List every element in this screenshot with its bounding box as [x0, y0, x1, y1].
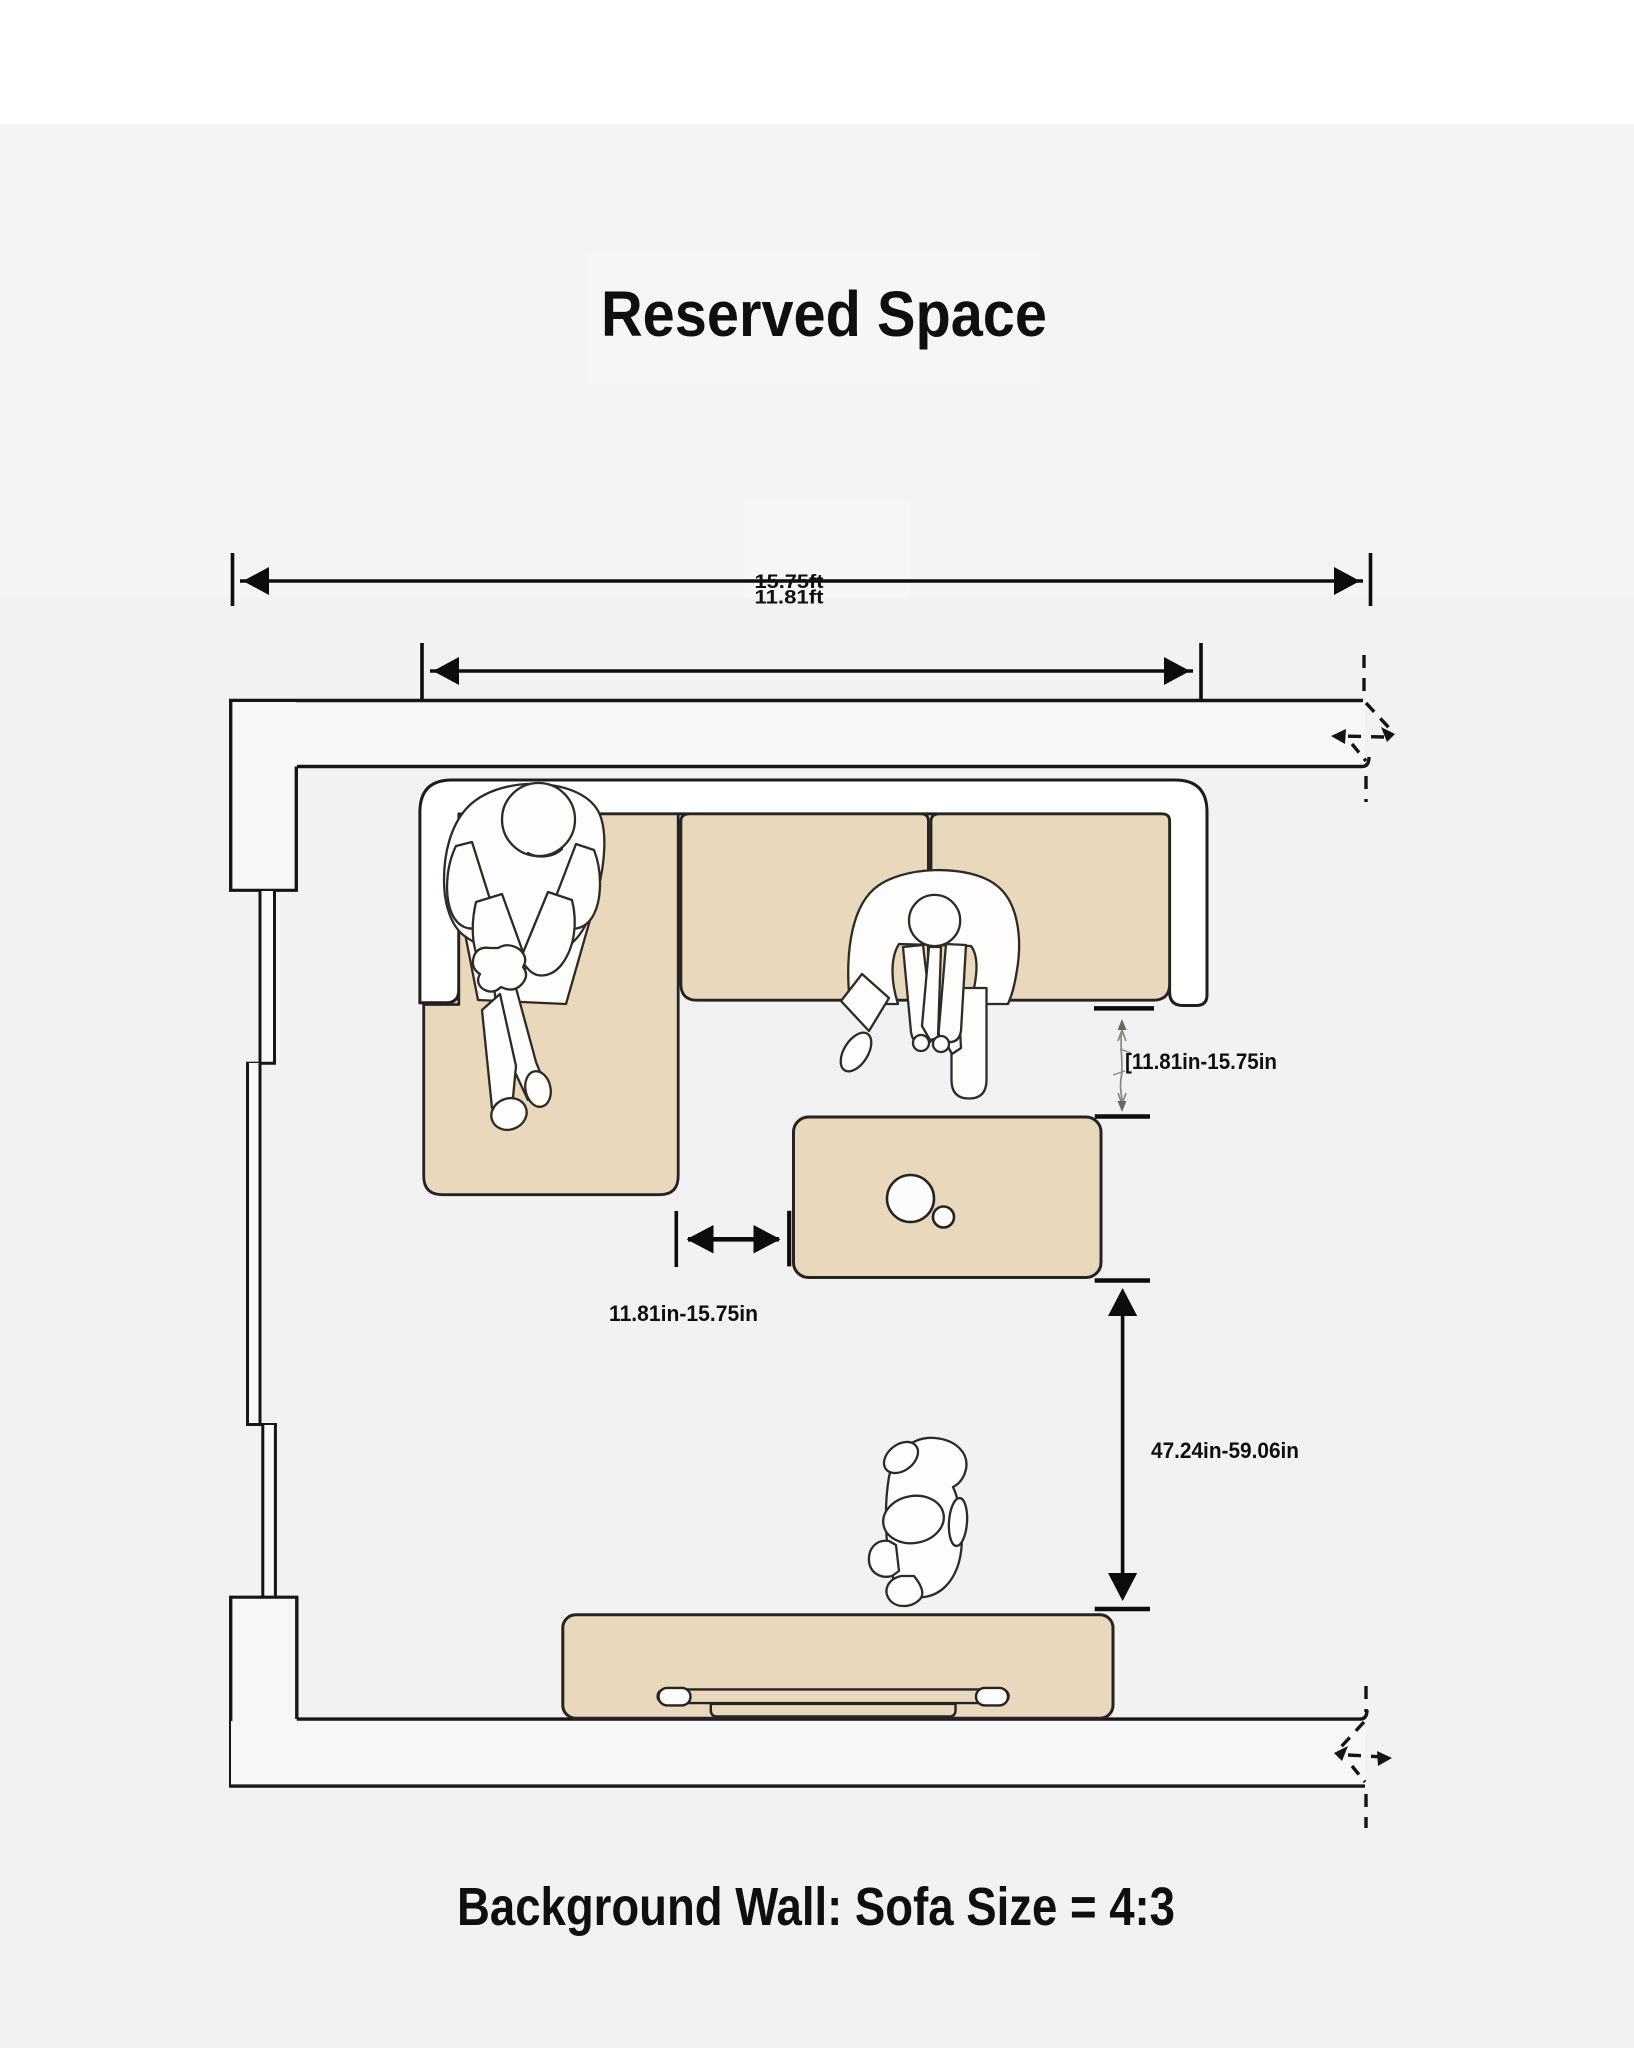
- svg-text:11.81ft: 11.81ft: [755, 587, 825, 609]
- svg-text:[11.81in-15.75in: [11.81in-15.75in: [1125, 1049, 1277, 1074]
- svg-text:Reserved Space: Reserved Space: [601, 278, 1047, 350]
- svg-text:11.81in-15.75in: 11.81in-15.75in: [609, 1301, 758, 1326]
- svg-text:47.24in-59.06in: 47.24in-59.06in: [1151, 1438, 1299, 1463]
- svg-text:Background Wall: Sofa Size = 4: Background Wall: Sofa Size = 4:3: [457, 1877, 1175, 1937]
